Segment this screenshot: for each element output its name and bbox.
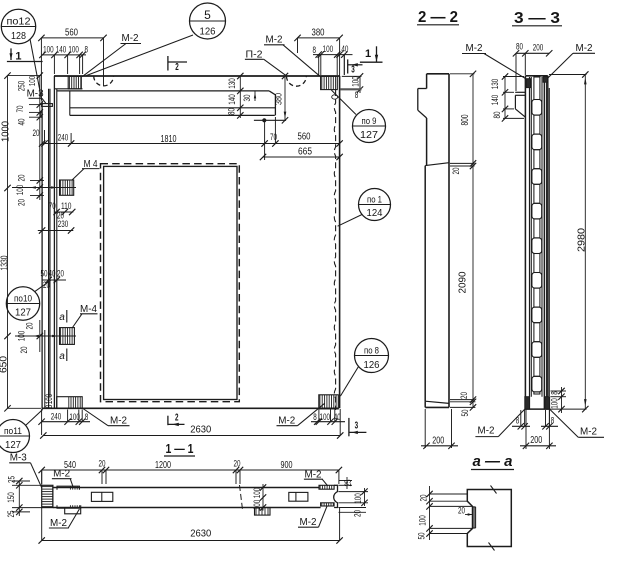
svg-text:1200: 1200: [155, 460, 171, 471]
svg-text:2 — 2: 2 — 2: [418, 9, 458, 26]
svg-text:230: 230: [58, 219, 69, 229]
svg-text:380: 380: [274, 93, 285, 105]
svg-text:80: 80: [492, 112, 502, 119]
svg-text:100: 100: [320, 412, 331, 422]
svg-text:25: 25: [7, 476, 17, 483]
svg-text:8: 8: [313, 412, 317, 422]
svg-text:40: 40: [17, 119, 27, 126]
svg-text:М-2: М-2: [53, 469, 70, 480]
svg-text:100: 100: [252, 488, 262, 499]
svg-text:100: 100: [353, 493, 363, 504]
svg-text:М-2: М-2: [122, 33, 139, 44]
svg-text:100: 100: [27, 76, 37, 87]
svg-text:100: 100: [323, 44, 334, 54]
svg-text:2: 2: [175, 61, 179, 73]
svg-text:по11: по11: [4, 426, 22, 437]
svg-text:по10: по10: [14, 294, 32, 305]
svg-text:1: 1: [15, 51, 21, 63]
svg-text:560: 560: [298, 132, 311, 143]
svg-text:5: 5: [204, 8, 211, 22]
svg-text:20: 20: [17, 199, 27, 206]
svg-text:800: 800: [460, 114, 471, 125]
svg-text:20: 20: [99, 459, 106, 470]
svg-text:М-2: М-2: [466, 43, 483, 54]
svg-text:50: 50: [417, 533, 427, 540]
svg-text:8: 8: [84, 45, 88, 55]
svg-text:50: 50: [41, 269, 48, 279]
svg-text:200: 200: [533, 43, 544, 53]
svg-text:2630: 2630: [190, 425, 211, 436]
svg-text:240: 240: [51, 412, 62, 423]
svg-text:1330: 1330: [0, 255, 11, 270]
svg-text:по 8: по 8: [364, 346, 379, 357]
svg-text:М-2: М-2: [266, 35, 283, 46]
svg-text:М-2: М-2: [305, 469, 322, 480]
svg-text:130: 130: [227, 78, 237, 89]
svg-text:70: 70: [270, 132, 277, 143]
svg-text:80: 80: [227, 108, 237, 115]
svg-text:20: 20: [33, 128, 40, 138]
svg-text:3 — 3: 3 — 3: [514, 10, 560, 27]
svg-text:по12: по12: [7, 17, 31, 28]
svg-text:100: 100: [252, 500, 262, 511]
svg-text:а — а: а — а: [473, 453, 513, 470]
svg-text:665: 665: [298, 147, 312, 158]
svg-text:20: 20: [459, 392, 469, 399]
svg-text:80: 80: [516, 42, 523, 52]
svg-text:100: 100: [350, 76, 360, 87]
svg-text:20: 20: [353, 510, 363, 517]
svg-text:126: 126: [200, 26, 216, 38]
svg-text:20: 20: [458, 506, 465, 516]
svg-text:127: 127: [5, 439, 21, 451]
svg-text:30: 30: [242, 94, 252, 101]
svg-text:250: 250: [17, 81, 27, 92]
svg-text:560: 560: [65, 28, 78, 39]
svg-text:20: 20: [17, 175, 27, 182]
svg-text:М-2: М-2: [110, 416, 127, 427]
svg-text:8: 8: [312, 45, 316, 55]
svg-text:100: 100: [418, 515, 428, 526]
svg-text:2630: 2630: [190, 529, 211, 540]
svg-text:126: 126: [364, 359, 380, 371]
svg-text:140: 140: [227, 94, 237, 105]
svg-text:50: 50: [460, 410, 470, 417]
svg-text:20: 20: [57, 269, 64, 279]
svg-text:а: а: [59, 312, 65, 323]
svg-text:100: 100: [17, 331, 27, 342]
svg-text:2: 2: [175, 412, 179, 424]
svg-text:20: 20: [419, 495, 429, 502]
svg-text:по 1: по 1: [367, 195, 382, 206]
svg-text:127: 127: [360, 129, 378, 141]
svg-text:М-2: М-2: [278, 416, 295, 427]
svg-text:2980: 2980: [577, 227, 588, 252]
svg-text:а: а: [59, 351, 65, 362]
svg-text:100: 100: [15, 185, 25, 196]
svg-text:3: 3: [351, 64, 355, 76]
svg-text:140: 140: [490, 95, 500, 106]
svg-text:по 9: по 9: [362, 116, 377, 127]
svg-text:127: 127: [15, 307, 31, 319]
svg-text:8: 8: [516, 416, 520, 426]
svg-text:М-2: М-2: [50, 518, 67, 529]
svg-text:8: 8: [550, 391, 560, 395]
svg-text:240: 240: [58, 133, 69, 143]
svg-text:М-3: М-3: [10, 453, 27, 464]
svg-text:1: 1: [365, 48, 371, 60]
svg-text:М-2: М-2: [576, 43, 593, 54]
svg-text:200: 200: [432, 436, 444, 447]
svg-text:100: 100: [550, 398, 560, 409]
svg-text:М-2: М-2: [478, 426, 495, 437]
svg-text:140: 140: [56, 45, 67, 55]
svg-text:8: 8: [551, 416, 555, 426]
svg-text:70: 70: [15, 106, 25, 113]
svg-text:100: 100: [43, 45, 54, 55]
svg-text:100: 100: [68, 45, 79, 55]
svg-text:8: 8: [85, 412, 89, 422]
svg-text:124: 124: [367, 207, 383, 219]
svg-text:М-2: М-2: [580, 427, 597, 438]
svg-text:128: 128: [11, 30, 26, 42]
svg-text:20: 20: [234, 459, 241, 470]
svg-text:100: 100: [69, 412, 80, 422]
svg-text:8: 8: [355, 90, 359, 100]
svg-text:150: 150: [6, 492, 16, 503]
svg-text:20: 20: [19, 347, 29, 354]
svg-text:3: 3: [355, 420, 359, 432]
svg-text:8: 8: [44, 405, 54, 409]
svg-text:70: 70: [49, 201, 56, 211]
svg-text:1 — 1: 1 — 1: [166, 442, 194, 456]
svg-text:40: 40: [341, 44, 348, 54]
svg-text:25: 25: [343, 480, 353, 487]
svg-text:1810: 1810: [161, 134, 177, 145]
svg-text:1000: 1000: [1, 120, 12, 142]
svg-text:130: 130: [490, 79, 500, 90]
svg-text:М-2: М-2: [300, 517, 317, 528]
svg-text:25: 25: [6, 511, 16, 518]
svg-text:900: 900: [281, 460, 293, 471]
svg-text:20: 20: [25, 323, 35, 330]
svg-text:380: 380: [312, 28, 325, 39]
svg-text:100: 100: [44, 394, 54, 405]
svg-text:20: 20: [451, 168, 461, 175]
svg-text:650: 650: [0, 355, 10, 373]
svg-text:200: 200: [530, 435, 542, 446]
svg-text:2090: 2090: [458, 271, 469, 294]
